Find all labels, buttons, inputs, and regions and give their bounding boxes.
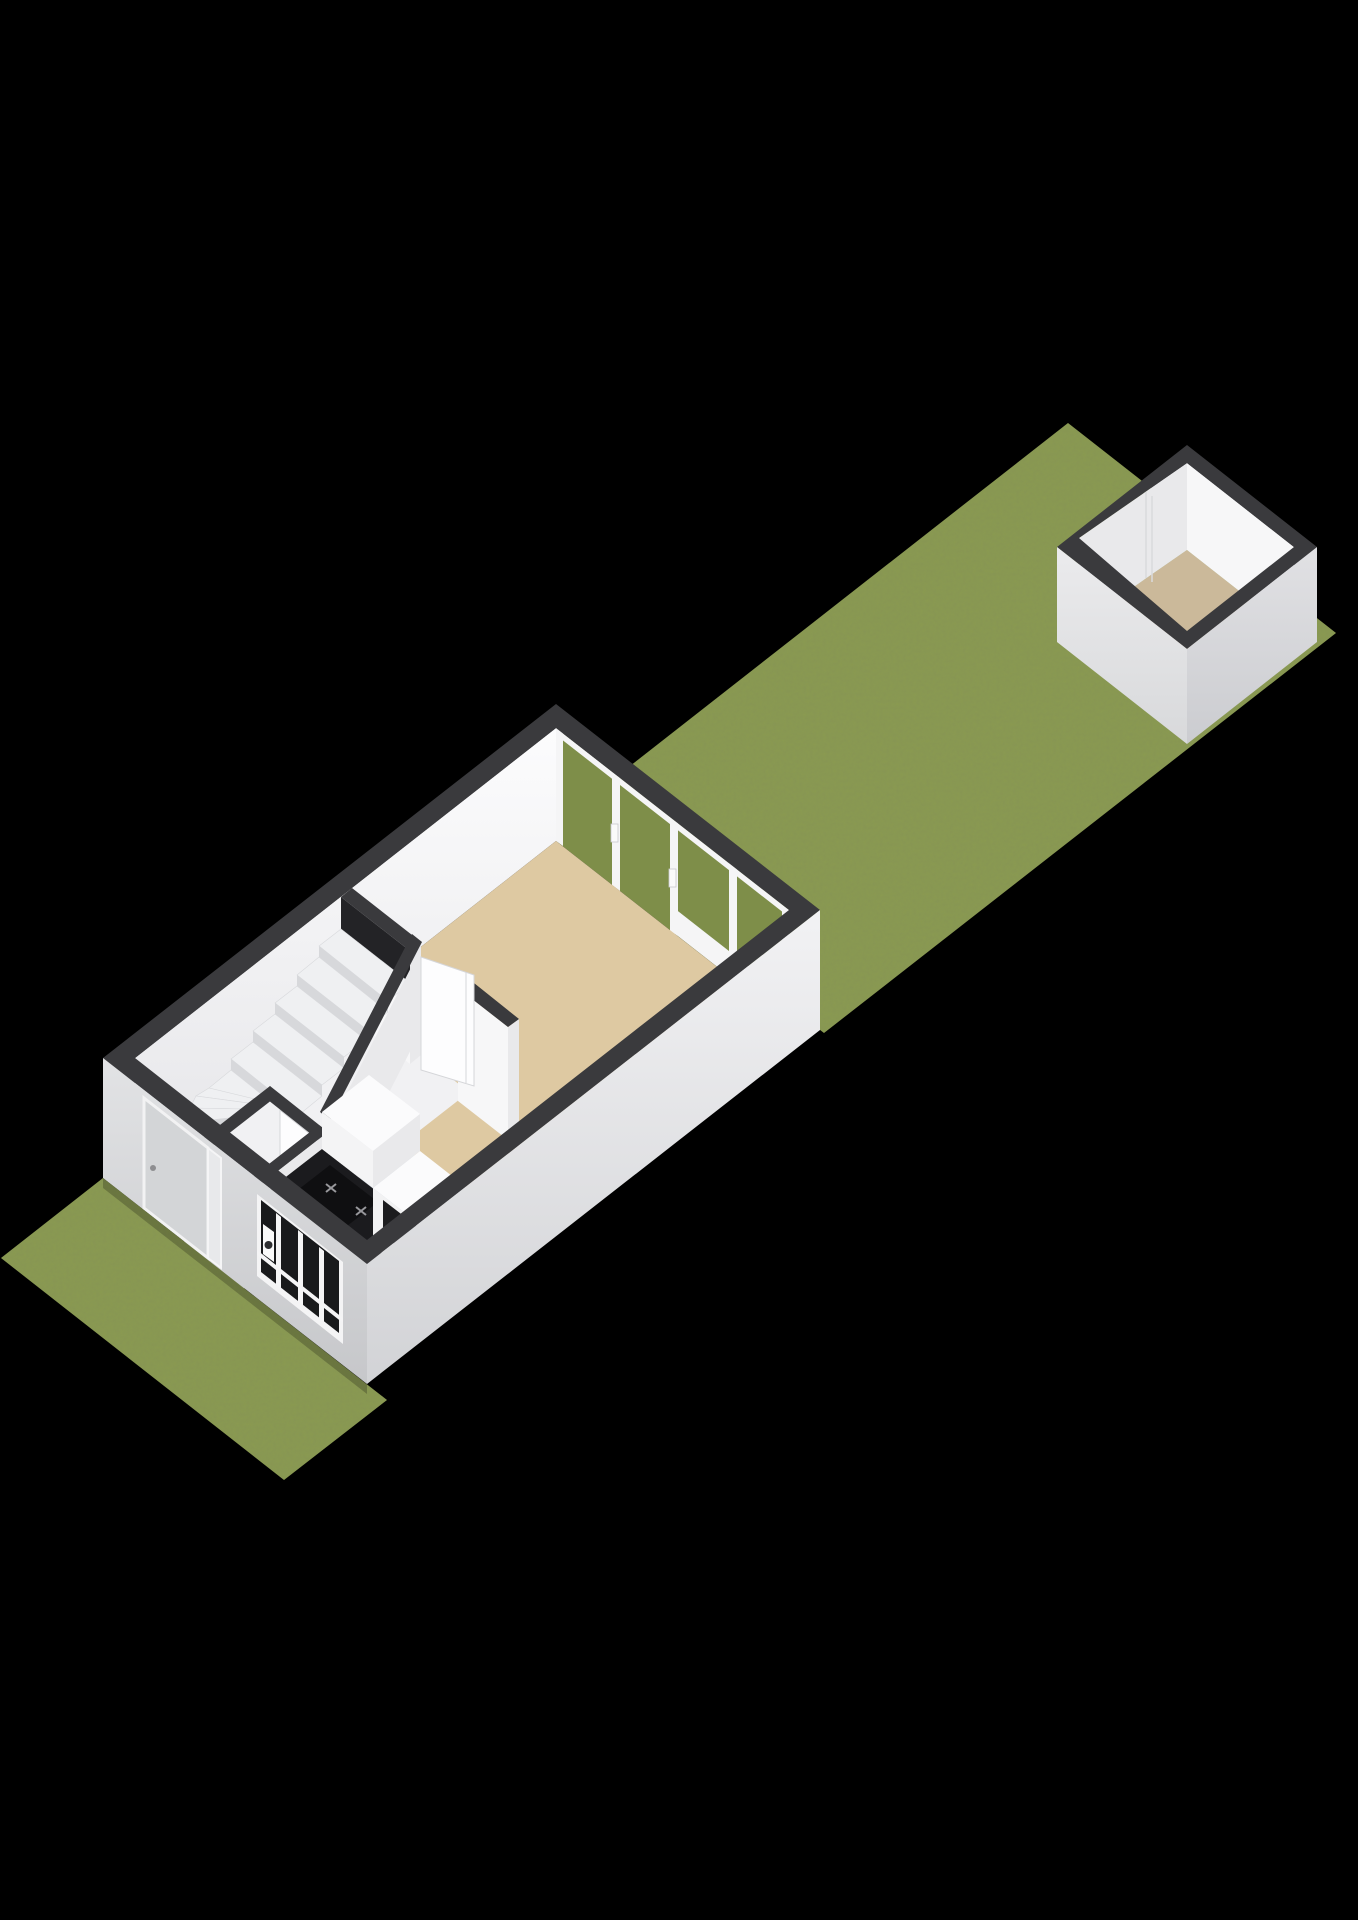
washing-machine-door-icon (265, 1241, 273, 1249)
window-mullion (319, 1247, 324, 1323)
partition-wall-end (508, 1019, 519, 1140)
sliding-door-handle (611, 824, 618, 842)
sliding-door-handle (669, 869, 676, 887)
door-sidelight (208, 1148, 221, 1268)
window-mullion (298, 1230, 303, 1306)
door-handle-icon (150, 1165, 156, 1171)
floorplan-canvas (0, 0, 1358, 1920)
living-room-door (421, 957, 474, 1086)
glass-left-jamb (556, 728, 563, 846)
window-mullion (276, 1213, 281, 1289)
floorplan-3d-view (0, 0, 1358, 1920)
